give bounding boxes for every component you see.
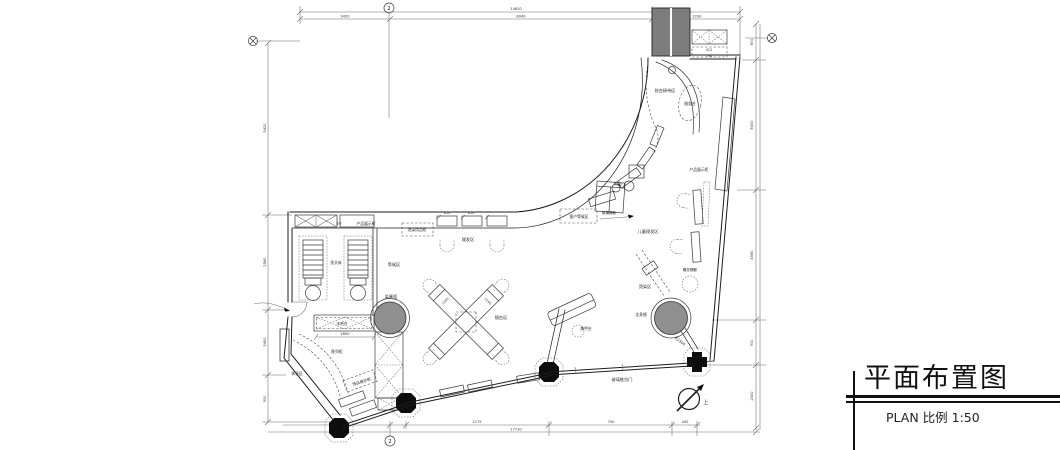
dim-rec-a: 412 [706, 48, 712, 52]
label-water-bar: 水吧台 [336, 321, 348, 326]
label-kids-cut: 儿童理发区 [638, 228, 659, 235]
dim-bottom-c: 750 [608, 420, 616, 424]
dim-bar-len: 2600 [340, 332, 350, 336]
carved-screen-circle [682, 276, 698, 292]
label-display-top: 产品展示柜 [357, 221, 376, 226]
dim-cab-a: 850 [444, 211, 450, 215]
label-cut-area: 理发区 [462, 236, 475, 243]
right-display-cabinet [702, 97, 735, 226]
label-dye-room: 染膏柜 [385, 293, 398, 300]
label-carved-screen: 雕花隔断 [683, 267, 698, 272]
grid-bubble-bottom: 2 [388, 439, 391, 445]
label-tv: TV [336, 221, 342, 226]
dim-island-a: 1150 [441, 297, 450, 306]
dim-right-d: 4060 [750, 250, 754, 260]
label-glass-partition: 玻璃隔断 [602, 210, 617, 215]
styling-island [384, 240, 548, 404]
floor-plan-sheet: 2 2 [0, 0, 1060, 450]
dim-top-c: 2230 [692, 15, 702, 19]
axis-bubble-right [767, 33, 776, 42]
dim-right-b: 900 [750, 340, 754, 346]
label-front-desk-area: 前台接待区 [655, 87, 676, 94]
label-reception-desk: 服务台 [684, 101, 696, 106]
dim-rec-b: 794 [706, 54, 712, 58]
dim-cab-b: 850 [468, 211, 474, 215]
label-display-cab-right: 产品展示柜 [690, 167, 709, 172]
dim-right-c: 2000 [750, 391, 754, 401]
label-display-cab-left: 陈列柜 [331, 349, 343, 354]
drawing-title: 平面布置图 [864, 356, 1009, 395]
label-kt: KT [618, 182, 623, 187]
north-arrow [677, 384, 704, 411]
dim-bottom-a: 2175 [472, 420, 481, 424]
dim-island-b: 1150 [483, 297, 492, 306]
label-full-mirror: 全身镜 [635, 312, 647, 317]
walls [280, 55, 740, 421]
title-rule-thick [846, 395, 1060, 398]
top-cabinet-band [295, 215, 507, 236]
shampoo-bed-2 [344, 236, 372, 301]
dim-right-e: 800 [750, 39, 754, 45]
label-mirror-island: 镜台区 [495, 314, 508, 321]
columns [325, 298, 710, 442]
dim-top-b: 8040 [516, 15, 526, 19]
dim-bottom-d: 440 [682, 420, 690, 424]
label-len-2500: 长2500 [673, 335, 687, 347]
title-divider-line [853, 371, 855, 450]
grid-bubbles: 2 2 [248, 3, 776, 446]
perm-partition [636, 250, 698, 352]
dimension-lines [256, 6, 768, 436]
dimension-texts: 14620 3420 8040 2230 5420 2560 3400 900 … [263, 7, 754, 432]
side-table-round [624, 181, 634, 191]
label-shampoo-bed: 洗头床 [330, 260, 342, 265]
labels: TV 产品展示柜 烫染用品柜 洗头床 等候区 染膏柜 理发区 镜台区 水吧台 陈… [291, 87, 708, 406]
label-guest-waiting: 客户等候区 [570, 214, 589, 219]
round-column-2 [655, 302, 688, 335]
label-dye-cabinet: 烫染用品柜 [408, 227, 427, 232]
dim-left-d: 900 [263, 396, 267, 402]
dim-left-a: 5420 [263, 123, 267, 133]
title-block: 平面布置图 PLAN 比例 1:50 [840, 350, 1060, 450]
label-north: 上 [703, 399, 708, 406]
dim-bottom-total: 17710 [510, 428, 522, 432]
dim-right-a: 8000 [750, 120, 754, 130]
black-column-1 [329, 418, 349, 438]
dim-left-b: 2560 [263, 257, 267, 267]
black-column-4 [687, 352, 707, 372]
dim-top-a: 3420 [340, 15, 350, 19]
bottom-left-fixtures [254, 303, 377, 416]
dim-top-total: 14620 [510, 7, 522, 11]
label-glass-door: 玻璃推拉门 [612, 376, 633, 383]
round-column-1 [374, 302, 406, 334]
grid-bubble-top: 2 [387, 6, 390, 12]
label-jewelry-display: 饰品展示柜 [352, 376, 372, 386]
label-rest-area: 休息区 [291, 371, 303, 376]
shampoo-beds [299, 236, 372, 301]
reception-area [646, 8, 727, 158]
storefront [343, 363, 691, 428]
label-perm-area: 烫染区 [639, 283, 652, 290]
dim-left-c: 3400 [263, 337, 267, 347]
curve-fixtures [588, 125, 664, 206]
shampoo-bed-1 [299, 236, 327, 301]
label-waiting-area: 等候区 [388, 261, 401, 268]
title-rule-thin [846, 401, 1060, 403]
label-nail-table: 美甲台 [580, 326, 592, 331]
drawing-scale: PLAN 比例 1:50 [886, 407, 980, 426]
